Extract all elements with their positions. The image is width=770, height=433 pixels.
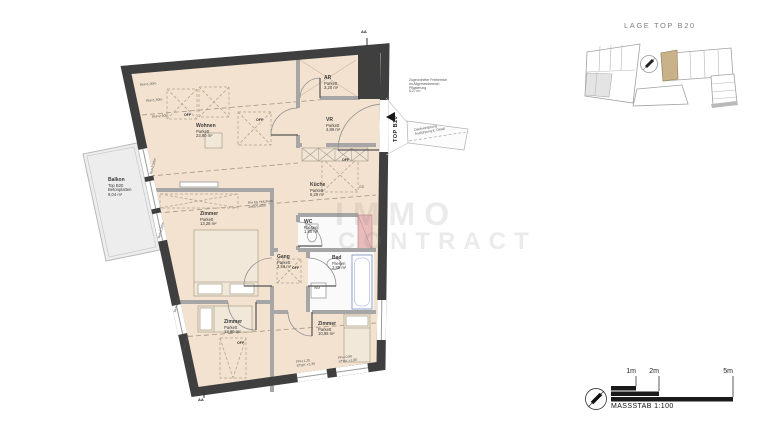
sliding-door <box>180 182 218 187</box>
dishwasher-label: GS <box>359 186 364 190</box>
off-label: OFF <box>292 266 299 270</box>
room-label-balkon: Balkon Top B20 Betonplatten 9,04 m² <box>108 178 132 198</box>
washing-machine-label: WM <box>314 287 320 291</box>
scale-tick-5m: 5m <box>715 368 733 376</box>
site-plan <box>585 44 738 108</box>
scale-caption: MASSSTAB 1:100 <box>611 403 674 411</box>
room-label-ar: AR Parkett 3,20 m² <box>324 76 338 91</box>
highlighted-unit <box>661 50 678 81</box>
watermark-line2: CONTRACT <box>338 228 537 256</box>
room-label-zimmer-2: Zimmer Parkett 13,80 m² <box>224 320 242 335</box>
room-label-bad: Bad Fliesen 3,85 m² <box>332 256 346 271</box>
lage-title: LAGE TOP B20 <box>624 22 696 30</box>
section-marker-top: AA <box>361 30 367 34</box>
off-label: OFF <box>256 118 263 122</box>
north-arrow-icon <box>641 56 658 73</box>
off-label: OFF <box>342 158 349 162</box>
section-marker-bottom: AA <box>198 398 204 402</box>
room-label-zimmer-3: Zimmer Parkett 10,95 m² <box>318 322 336 337</box>
freibereich-note: Zugeordneter Freibereich im Allgemeinber… <box>409 79 447 94</box>
room-label-kueche: Küche Parkett 6,29 m² <box>310 183 325 198</box>
room-label-gang: Gang Parkett 3,56 m² <box>277 255 291 270</box>
room-label-wc: WC Fliesen 1,80 m² <box>304 220 318 235</box>
room-label-zimmer-1: Zimmer Parkett 13,28 m² <box>200 212 218 227</box>
off-label: OFF <box>237 341 244 345</box>
compass-icon <box>586 389 607 410</box>
chimney-block <box>358 51 380 99</box>
room-label-vr: VR Parkett 4,89 m² <box>326 118 340 133</box>
off-label: OFF <box>184 113 191 117</box>
room-label-wohnen: Wohnen Parkett 23,80 m² <box>196 124 216 139</box>
room-area: 23,80 m² <box>196 134 216 139</box>
floorplan-page: IMMO CONTRACT Wohnen Parkett 23,80 m² AR… <box>0 0 770 433</box>
scale-tick-2m: 2m <box>641 368 659 376</box>
entrance-label: TOP B20 <box>393 116 399 142</box>
scale-tick-1m: 1m <box>618 368 636 376</box>
